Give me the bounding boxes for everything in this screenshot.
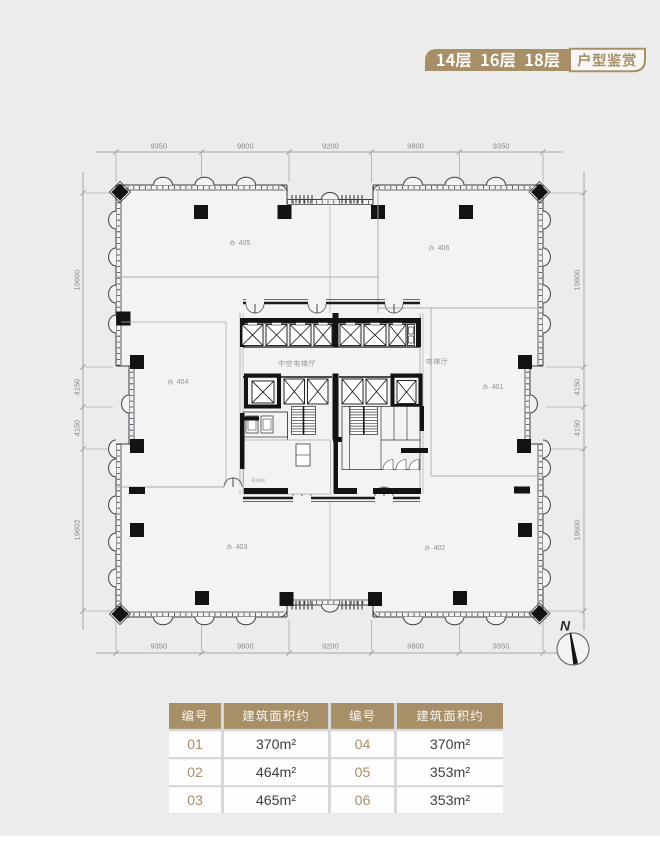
svg-text:353m²: 353m² <box>430 765 470 781</box>
svg-text:9350: 9350 <box>493 142 510 151</box>
svg-text:19602: 19602 <box>73 520 82 541</box>
svg-text:401: 401 <box>492 384 504 391</box>
svg-text:01: 01 <box>187 737 203 753</box>
svg-text:4150: 4150 <box>573 379 582 396</box>
svg-text:9200: 9200 <box>322 142 339 151</box>
svg-text:370m²: 370m² <box>430 737 470 753</box>
svg-text:9800: 9800 <box>237 142 254 151</box>
svg-text:19600: 19600 <box>573 520 582 541</box>
svg-text:9350: 9350 <box>150 142 167 151</box>
svg-text:04: 04 <box>355 737 371 753</box>
svg-text:4150: 4150 <box>573 420 582 437</box>
svg-text:464m²: 464m² <box>256 765 296 781</box>
svg-text:19600: 19600 <box>573 270 582 291</box>
svg-text:9350: 9350 <box>150 642 167 651</box>
svg-text:05: 05 <box>355 765 371 781</box>
svg-text:403: 403 <box>236 544 248 551</box>
svg-text:03: 03 <box>187 793 203 809</box>
svg-text:353m²: 353m² <box>430 793 470 809</box>
svg-text:02: 02 <box>187 765 203 781</box>
svg-text:4150: 4150 <box>73 420 82 437</box>
svg-text:9350: 9350 <box>493 642 510 651</box>
svg-text:402: 402 <box>434 545 446 552</box>
svg-text:9200: 9200 <box>322 642 339 651</box>
svg-text:405: 405 <box>239 240 251 247</box>
svg-text:406: 406 <box>438 245 450 252</box>
svg-text:9800: 9800 <box>407 142 424 151</box>
svg-text:4150: 4150 <box>73 379 82 396</box>
svg-text:404: 404 <box>177 379 189 386</box>
svg-text:465m²: 465m² <box>256 793 296 809</box>
svg-text:370m²: 370m² <box>256 737 296 753</box>
svg-text:19600: 19600 <box>73 270 82 291</box>
svg-text:N: N <box>560 618 571 634</box>
svg-text:9800: 9800 <box>407 642 424 651</box>
svg-text:06: 06 <box>355 793 371 809</box>
svg-text:9800: 9800 <box>237 642 254 651</box>
